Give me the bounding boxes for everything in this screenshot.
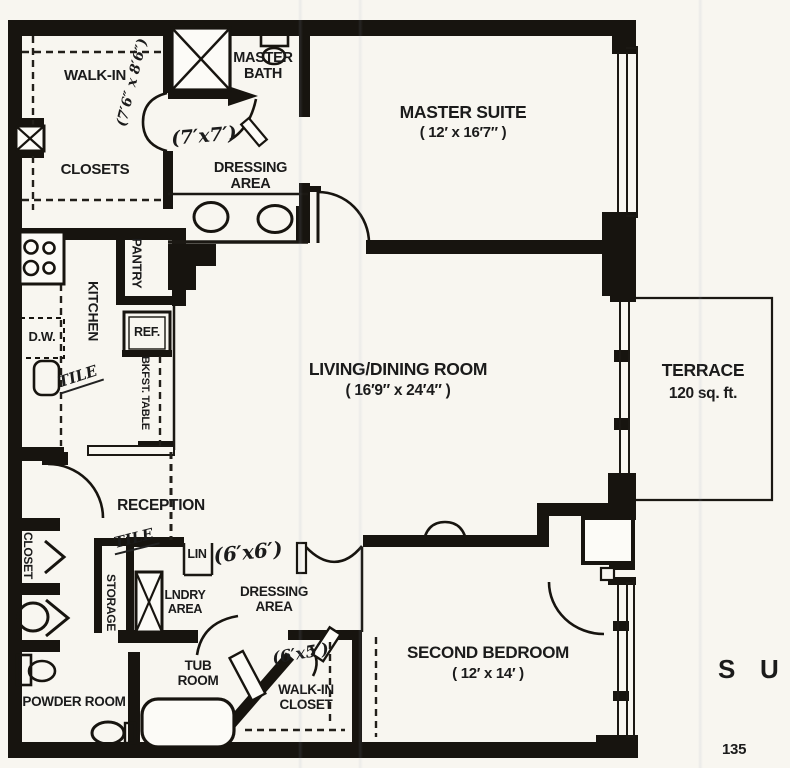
column-icon [16, 126, 44, 151]
room-label-closets: CLOSETS [53, 162, 137, 179]
vanity-sinks-icon [194, 203, 292, 233]
room-label-dressing-area-2: DRESSING AREA [228, 585, 320, 615]
room-label-tub-room: TUB ROOM [167, 659, 229, 689]
room-label-hall-closet: CLOSET [21, 532, 34, 579]
room-area-terrace: 120 sq. ft. [648, 385, 758, 402]
room-label-powder-room: POWDER ROOM [16, 695, 132, 710]
room-dims-master-suite: ( 12′ x 16′7″ ) [378, 125, 548, 142]
room-label-reception: RECEPTION [106, 497, 216, 514]
room-label-dressing-area-1: DRESSING AREA [203, 161, 298, 193]
toilet-icon [17, 655, 55, 685]
page-number: 135 [722, 742, 762, 759]
tub-room-door-arc [197, 616, 238, 655]
bifold-door-icon [45, 541, 64, 573]
room-dims-second-bedroom: ( 12′ x 14′ ) [393, 666, 583, 683]
margin-corner-letters: S U [718, 655, 790, 684]
label-refrigerator: REF. [124, 326, 170, 340]
bathtub-icon [142, 699, 234, 747]
room-label-kitchen: KITCHEN [85, 281, 100, 341]
kitchen-door-arc [48, 464, 103, 518]
label-breakfast-table: BKFST. TABLE [139, 356, 151, 430]
cooktop-icon [20, 232, 64, 284]
label-dishwasher: D.W. [20, 330, 64, 344]
label-linen: LIN [183, 548, 211, 562]
closet-double-door-arcs [143, 93, 167, 151]
hvac-unit [583, 518, 633, 563]
room-label-master-suite: MASTER SUITE [378, 103, 548, 122]
windows [618, 46, 638, 740]
hall-door-arc [306, 546, 362, 562]
room-dims-living-dining: ( 16′9″ x 24′4″ ) [298, 382, 498, 399]
sink-icon [18, 603, 48, 631]
room-label-storage: STORAGE [104, 574, 117, 631]
floor-plan: WALK-IN CLOSETS (7′6″ x 8′6″) MASTER BAT… [0, 0, 790, 768]
room-label-terrace: TERRACE [648, 361, 758, 380]
door-leaf [241, 118, 267, 146]
room-label-living-dining: LIVING/DINING ROOM [298, 360, 498, 379]
room-label-laundry: LNDRY AREA [159, 589, 211, 617]
room-label-pantry: PANTRY [129, 238, 143, 288]
room-label-walk-in-closet-2: WALK-IN CLOSET [260, 683, 352, 713]
master-suite-door-arc [318, 192, 369, 243]
door-jamb [297, 543, 306, 573]
door-jamb [601, 568, 614, 580]
room-label-second-bedroom: SECOND BEDROOM [393, 644, 583, 663]
bedroom-door-arc [549, 582, 604, 634]
room-label-master-bath: MASTER BATH [222, 51, 304, 83]
